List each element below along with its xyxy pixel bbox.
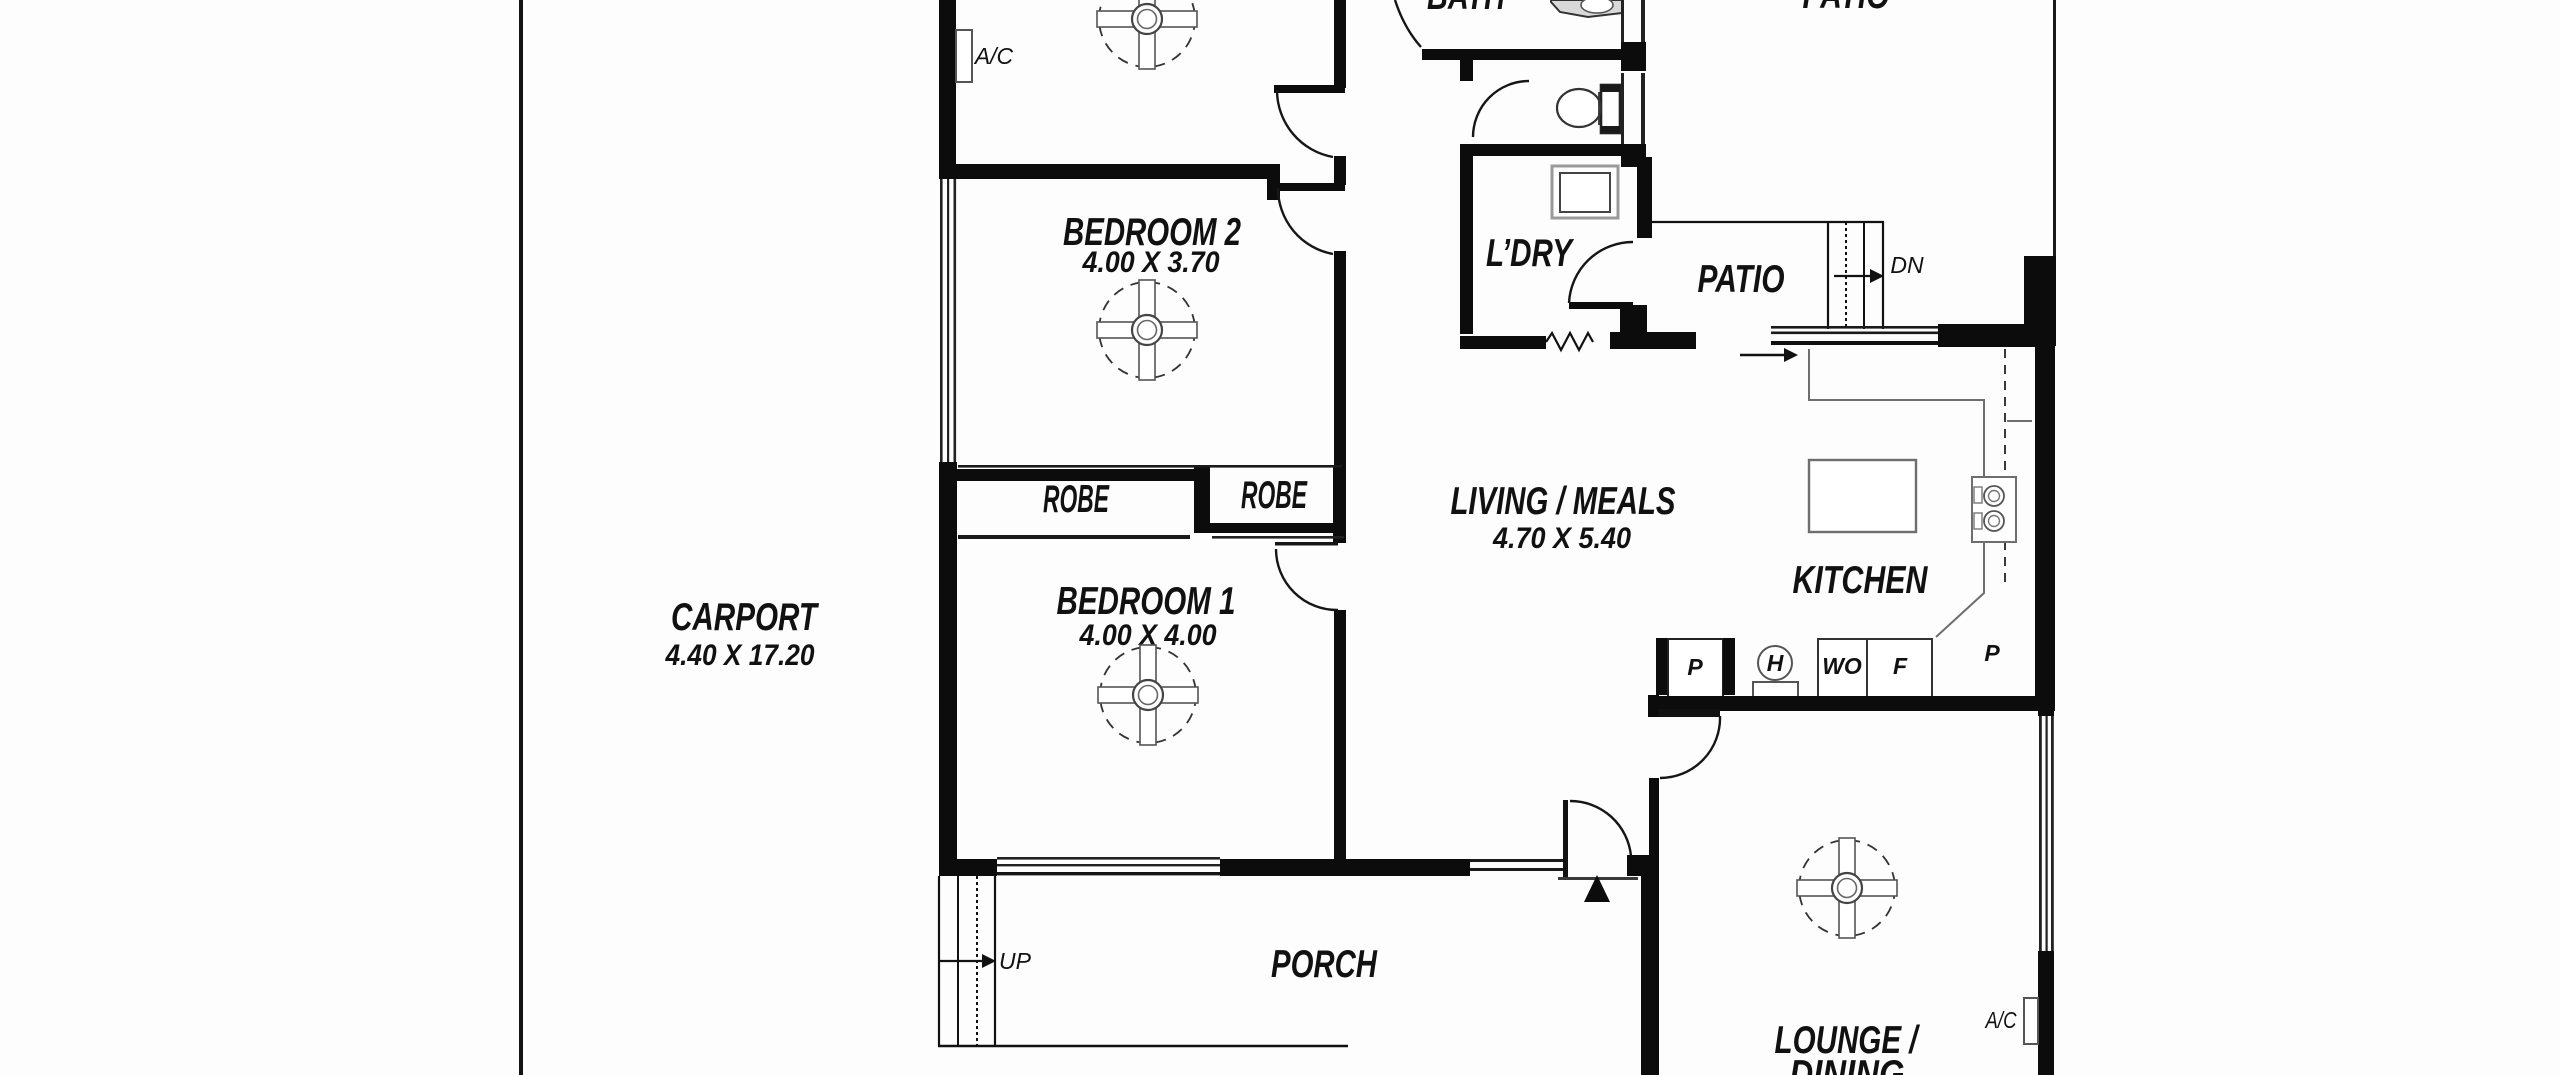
svg-text:WO: WO xyxy=(1822,653,1862,679)
svg-text:A/C: A/C xyxy=(973,43,1014,69)
svg-text:ROBE: ROBE xyxy=(1043,478,1110,521)
svg-text:4.40 X 17.20: 4.40 X 17.20 xyxy=(665,639,815,672)
svg-text:F: F xyxy=(1893,653,1908,679)
svg-text:PATIO: PATIO xyxy=(1698,258,1785,301)
svg-text:DN: DN xyxy=(1890,252,1924,278)
svg-text:BEDROOM 1: BEDROOM 1 xyxy=(1057,580,1236,623)
svg-text:KITCHEN: KITCHEN xyxy=(1793,559,1929,602)
svg-text:BATH: BATH xyxy=(1427,0,1506,18)
svg-text:DINING: DINING xyxy=(1790,1053,1905,1075)
svg-text:PORCH: PORCH xyxy=(1271,943,1378,986)
svg-text:4.00 X 3.70: 4.00 X 3.70 xyxy=(1082,246,1220,279)
svg-text:4.70 X 5.40: 4.70 X 5.40 xyxy=(1492,522,1631,555)
svg-text:PATIO: PATIO xyxy=(1803,0,1890,17)
svg-text:H: H xyxy=(1767,650,1784,676)
svg-text:CARPORT: CARPORT xyxy=(671,596,819,639)
svg-text:LIVING / MEALS: LIVING / MEALS xyxy=(1451,480,1676,523)
svg-text:A/C: A/C xyxy=(1984,1007,2017,1033)
svg-text:UP: UP xyxy=(999,948,1032,974)
svg-text:P: P xyxy=(1984,640,2000,666)
svg-text:L’DRY: L’DRY xyxy=(1486,232,1574,275)
svg-text:P: P xyxy=(1687,654,1703,680)
svg-text:ROBE: ROBE xyxy=(1241,474,1308,517)
